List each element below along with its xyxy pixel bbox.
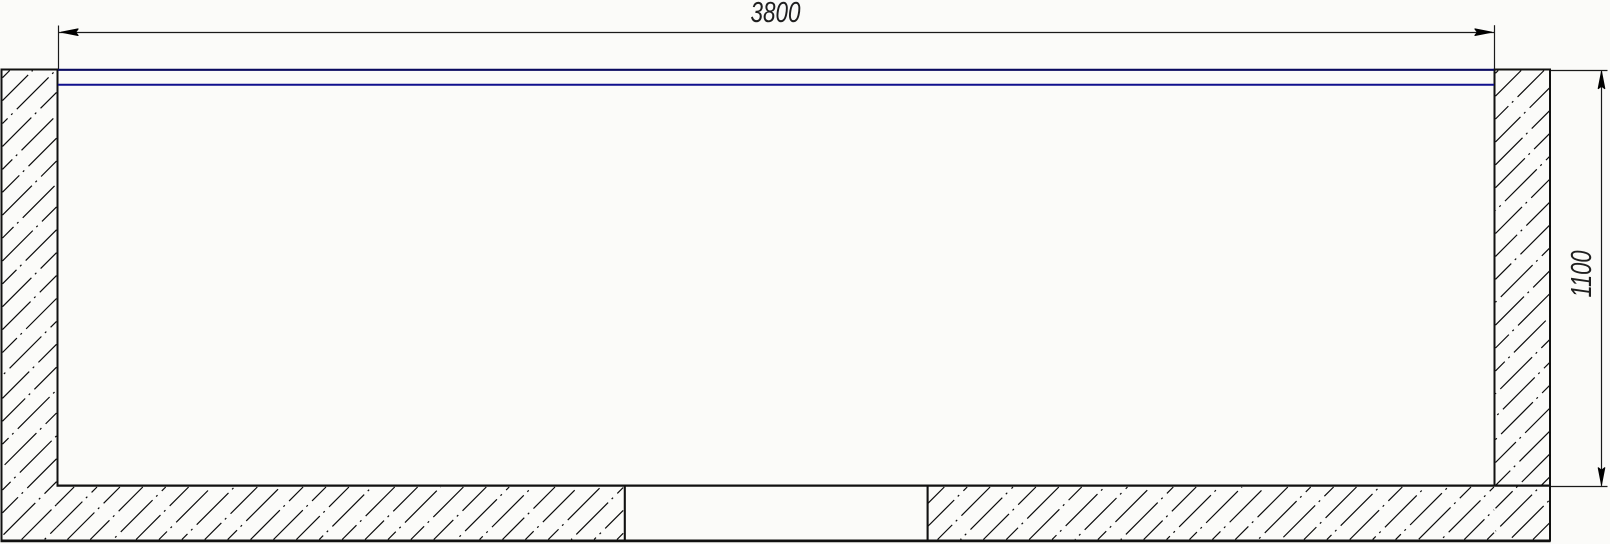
svg-text:1100: 1100: [1566, 250, 1598, 297]
svg-text:3800: 3800: [751, 0, 801, 29]
